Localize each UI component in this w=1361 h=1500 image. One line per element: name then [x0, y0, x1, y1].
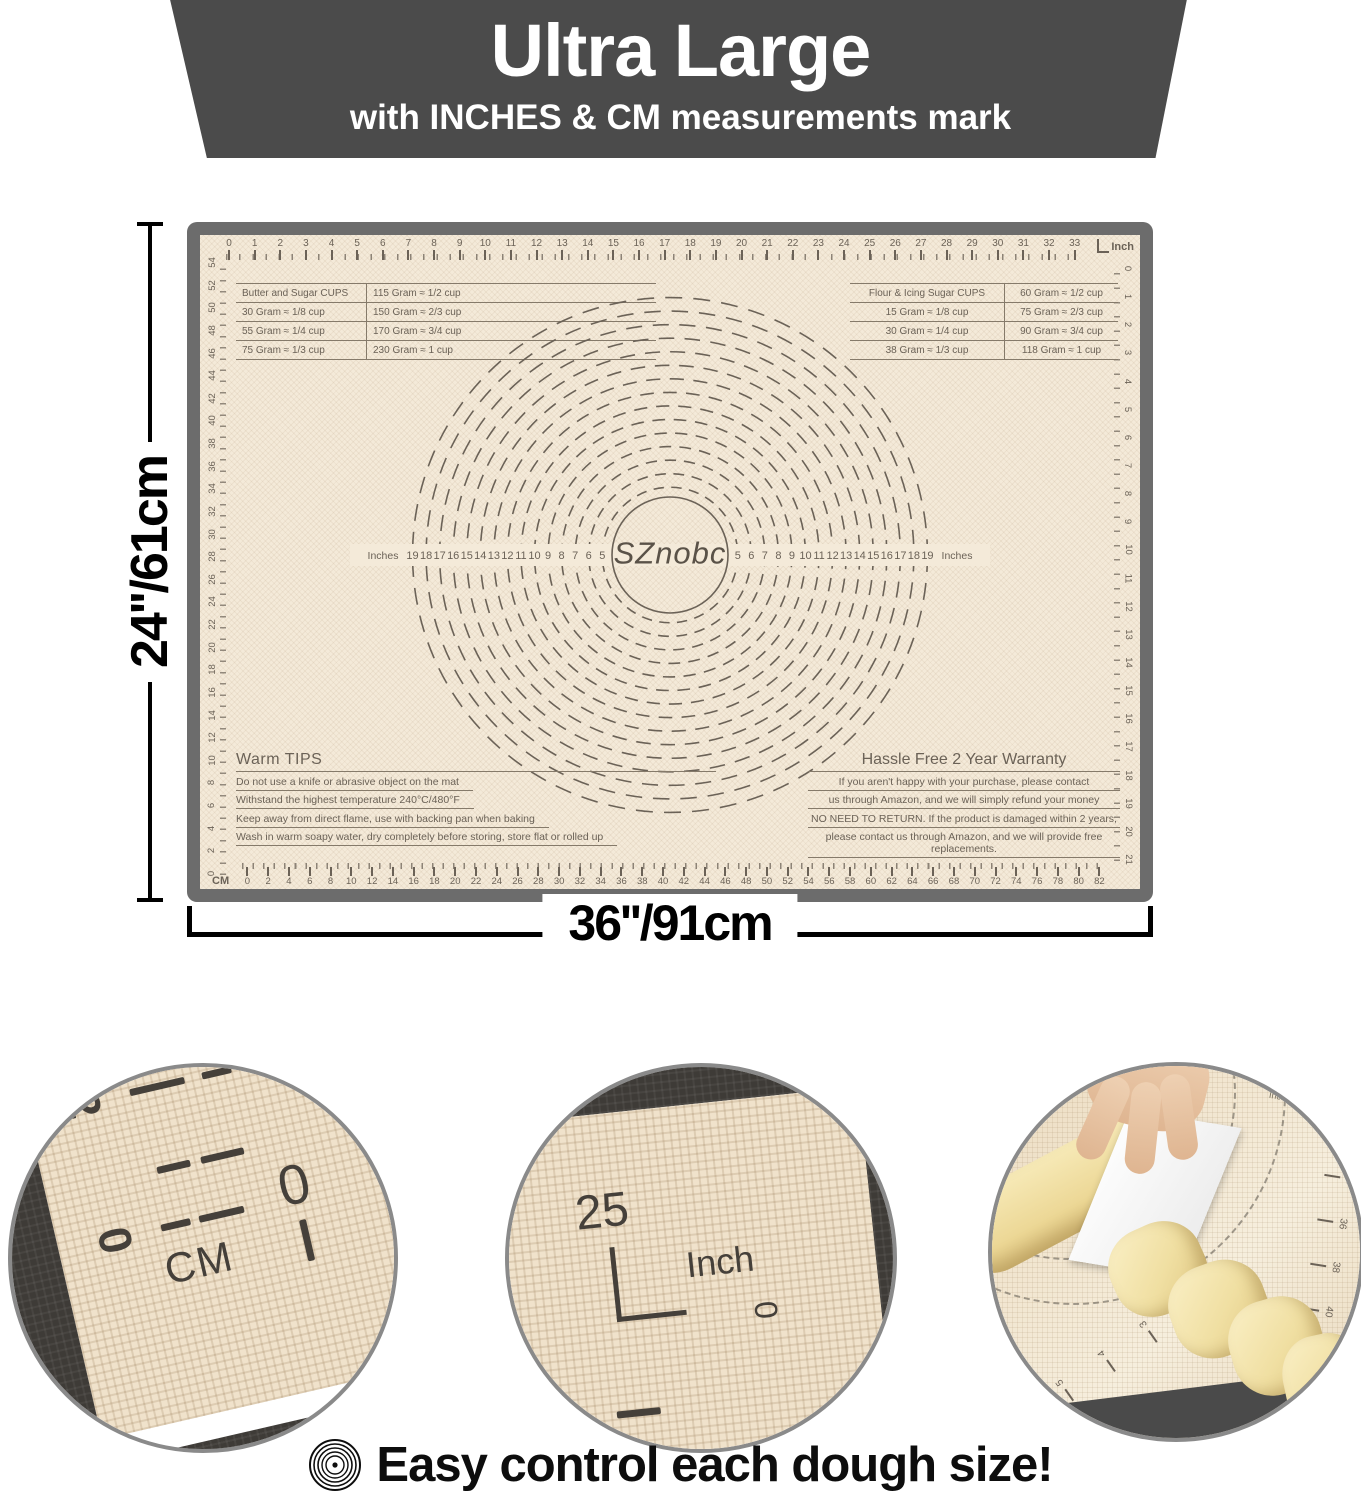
svg-text:17: 17 — [434, 550, 446, 562]
ruler-number: 36 — [207, 461, 218, 472]
ruler-number: 44 — [207, 370, 218, 381]
svg-text:14: 14 — [474, 550, 486, 562]
ruler-number: 8 — [1125, 488, 1130, 499]
ruler-number: 17 — [1123, 741, 1134, 752]
ruler-number: 24 — [207, 596, 218, 607]
conversion-cell: 75 Gram ≈ 1/3 cup — [236, 341, 367, 360]
height-dimension: 24''/61cm — [118, 222, 182, 902]
dimension-cap — [137, 898, 163, 902]
ruler-number: 20 — [207, 642, 218, 653]
ruler-number: 38 — [207, 438, 218, 449]
svg-text:13: 13 — [488, 550, 500, 562]
width-label: 36''/91cm — [542, 894, 797, 952]
inch-corner-inset: 25 Inch 0 — [505, 1063, 897, 1453]
header-banner: Ultra Large with INCHES & CM measurement… — [0, 0, 1361, 158]
ruler-number: 48 — [207, 325, 218, 336]
warranty-title: Hassle Free 2 Year Warranty — [808, 751, 1120, 772]
banner-subtitle: with INCHES & CM measurements mark — [350, 98, 1011, 138]
ruler-number: 0 — [209, 868, 214, 879]
ruler-number: 74 — [1010, 867, 1023, 887]
ruler-number: 11 — [1123, 573, 1133, 584]
tips-line: Wash in warm soapy water, dry completely… — [236, 828, 617, 847]
ruler-number: 5 — [1055, 1376, 1076, 1402]
svg-text:18: 18 — [908, 550, 920, 562]
banner-title: Ultra Large — [491, 14, 871, 88]
svg-text:11: 11 — [813, 550, 824, 562]
ruler-number: 19 — [1123, 798, 1134, 809]
svg-text:11: 11 — [515, 550, 526, 562]
svg-text:7: 7 — [762, 550, 768, 562]
svg-text:15: 15 — [461, 550, 473, 562]
ruler-number: 26 — [207, 574, 218, 585]
ruler-number: 52 — [207, 280, 218, 291]
ruler-number: 3 — [299, 238, 313, 264]
conversion-cell: Butter and Sugar CUPS — [236, 284, 367, 303]
ruler-number: 78 — [1051, 867, 1064, 887]
ruler-number: 15 — [1123, 685, 1134, 696]
ruler-number: 40 — [207, 415, 218, 426]
ruler-number: 3 — [1139, 1318, 1160, 1344]
caption-text: Easy control each dough size! — [376, 1437, 1052, 1493]
ruler-number: 21 — [1123, 854, 1134, 865]
ruler-number: 32 — [1331, 1125, 1361, 1144]
ruler-number: 0 — [746, 1299, 785, 1321]
svg-text:10: 10 — [799, 550, 811, 562]
mat-corner-closeup: 25 Inch 0 — [505, 1063, 897, 1453]
dough-photo-inset: Inches 32343638404244 65432 — [988, 1062, 1361, 1442]
bullseye-icon — [308, 1438, 362, 1492]
ruler-number: 10 — [1123, 544, 1134, 555]
ruler-number: 16 — [1123, 713, 1134, 724]
ruler-corner-icon — [1097, 239, 1109, 253]
svg-text:8: 8 — [559, 550, 565, 562]
svg-text:12: 12 — [826, 550, 838, 562]
svg-text:10: 10 — [528, 550, 540, 562]
svg-text:19: 19 — [406, 550, 418, 562]
ruler-number: 4 — [1097, 1347, 1118, 1373]
ruler-number: 50 — [207, 302, 218, 313]
ruler-number: 8 — [324, 867, 337, 887]
ruler-number: 4 — [1125, 376, 1130, 387]
width-dimension: 36''/91cm — [187, 902, 1153, 998]
warranty-line: NO NEED TO RETURN. If the product is dam… — [808, 809, 1120, 828]
svg-text:Inches: Inches — [368, 550, 399, 562]
ruler-number: 38 — [1309, 1258, 1361, 1277]
ruler-number: 1 — [1125, 291, 1130, 302]
ruler-number: 22 — [207, 619, 218, 630]
conversion-cell: 60 Gram ≈ 1/2 cup — [1005, 284, 1119, 303]
svg-text:12: 12 — [501, 550, 513, 562]
ruler-number: 10 — [207, 755, 218, 766]
ruler-number: 82 — [1093, 867, 1106, 887]
ruler-number: 34 — [207, 483, 218, 494]
ruler-number: 12 — [207, 732, 218, 743]
svg-text:6: 6 — [586, 550, 592, 562]
ruler-number: 18 — [207, 664, 218, 675]
height-label: 24''/61cm — [120, 442, 180, 682]
svg-text:5: 5 — [735, 550, 741, 562]
ruler-number: 54 — [207, 257, 218, 268]
svg-text:6: 6 — [748, 550, 754, 562]
ruler-number: 14 — [1123, 657, 1134, 668]
inch-unit-label: Inch — [1097, 239, 1134, 253]
ruler-number: 31 — [1016, 238, 1030, 264]
ruler-number: 0 — [241, 867, 254, 887]
dimension-cap — [1148, 906, 1153, 937]
ruler-number: 4 — [209, 823, 214, 834]
ruler-number: 32 — [207, 506, 218, 517]
ruler-number: 6 — [303, 867, 316, 887]
ruler-number: 2 — [1125, 319, 1130, 330]
svg-text:19: 19 — [921, 550, 933, 562]
ruler-number: 42 — [207, 393, 218, 404]
conversion-cell: 30 Gram ≈ 1/8 cup — [236, 303, 367, 322]
cm-corner-inset: 2 0 CM 0 — [8, 1063, 398, 1453]
ruler-number: 4 — [325, 238, 339, 264]
ruler-number: 32 — [1042, 238, 1056, 264]
svg-text:16: 16 — [881, 550, 893, 562]
inch-unit-label: Inch — [685, 1238, 757, 1287]
svg-text:14: 14 — [854, 550, 866, 562]
conversion-cell: 90 Gram ≈ 3/4 cup — [1005, 322, 1119, 341]
ruler-number: 6 — [1125, 432, 1130, 443]
conversion-cell: 55 Gram ≈ 1/4 cup — [236, 322, 367, 341]
ruler-number: 30 — [991, 238, 1005, 264]
tips-line: Withstand the highest temperature 240°C/… — [236, 791, 474, 810]
ruler-number: 20 — [1123, 826, 1134, 837]
svg-text:17: 17 — [894, 550, 906, 562]
svg-text:7: 7 — [572, 550, 578, 562]
dough-cutting-photo: Inches 32343638404244 65432 — [992, 1066, 1360, 1438]
ruler-number: 5 — [1125, 404, 1130, 415]
ruler-corner-icon — [610, 1240, 687, 1321]
svg-text:15: 15 — [867, 550, 879, 562]
product-listing-image: Ultra Large with INCHES & CM measurement… — [0, 0, 1361, 1500]
ruler-number: 16 — [207, 687, 218, 698]
svg-text:16: 16 — [447, 550, 459, 562]
svg-text:8: 8 — [775, 550, 781, 562]
ruler-number: 12 — [1123, 601, 1134, 612]
conversion-cell: 75 Gram ≈ 2/3 cup — [1005, 303, 1119, 322]
ruler-number: 2 — [262, 867, 275, 887]
ruler-number: 80 — [1072, 867, 1085, 887]
warranty-line: If you aren't happy with your purchase, … — [808, 772, 1120, 791]
ruler-number: 13 — [1123, 629, 1134, 640]
warm-tips: Warm TIPS Do not use a knife or abrasive… — [236, 751, 716, 846]
ruler-number: 7 — [1125, 460, 1130, 471]
warranty-note: Hassle Free 2 Year Warranty If you aren'… — [808, 751, 1120, 858]
ruler-number: 72 — [989, 867, 1002, 887]
ruler-number: 0 — [1125, 263, 1130, 274]
tips-title: Warm TIPS — [236, 751, 716, 772]
ruler-number: 25 — [573, 1181, 632, 1241]
tips-line: Keep away from direct flame, use with ba… — [236, 809, 549, 828]
ruler-number: 4 — [282, 867, 295, 887]
ruler-number: 2 — [209, 845, 214, 856]
ruler-number: 36 — [1316, 1214, 1361, 1233]
ruler-number: 34 — [1323, 1170, 1361, 1189]
svg-text:Inches: Inches — [942, 550, 973, 562]
ruler-number: 14 — [207, 710, 218, 721]
conversion-cell: 118 Gram ≈ 1 cup — [1005, 341, 1119, 360]
tips-line: Do not use a knife or abrasive object on… — [236, 772, 473, 791]
ruler-number: 6 — [209, 800, 214, 811]
inch-ruler-right: 0123456789101112131415161718192021 — [1119, 263, 1137, 865]
bottom-caption: Easy control each dough size! — [0, 1432, 1361, 1498]
cm-ruler-left: 5452504846444240383634323028262422201816… — [203, 257, 221, 879]
pastry-mat: 0123456789101112131415161718192021222324… — [187, 222, 1153, 902]
ruler-number: 30 — [207, 529, 218, 540]
svg-text:5: 5 — [599, 550, 605, 562]
ruler-number: 18 — [1123, 770, 1134, 781]
svg-text:13: 13 — [840, 550, 852, 562]
warranty-line: us through Amazon, and we will simply re… — [808, 791, 1120, 810]
svg-text:18: 18 — [420, 550, 432, 562]
mat-corner-closeup: 2 0 CM 0 — [8, 1063, 398, 1453]
svg-text:9: 9 — [789, 550, 795, 562]
svg-text:9: 9 — [545, 550, 551, 562]
brand-logo: SZnobc — [614, 536, 727, 572]
ruler-number: 28 — [207, 551, 218, 562]
warranty-line: please contact us through Amazon, and we… — [808, 828, 1120, 859]
ruler-number: 9 — [1125, 516, 1130, 527]
ruler-number: 33 — [1068, 238, 1082, 264]
ruler-number: 2 — [273, 238, 287, 264]
ruler-number: 46 — [207, 348, 218, 359]
ruler-number: 8 — [209, 777, 214, 788]
ruler-number: 1 — [248, 238, 262, 264]
ruler-number: 76 — [1031, 867, 1044, 887]
ruler-number: 3 — [1125, 347, 1130, 358]
